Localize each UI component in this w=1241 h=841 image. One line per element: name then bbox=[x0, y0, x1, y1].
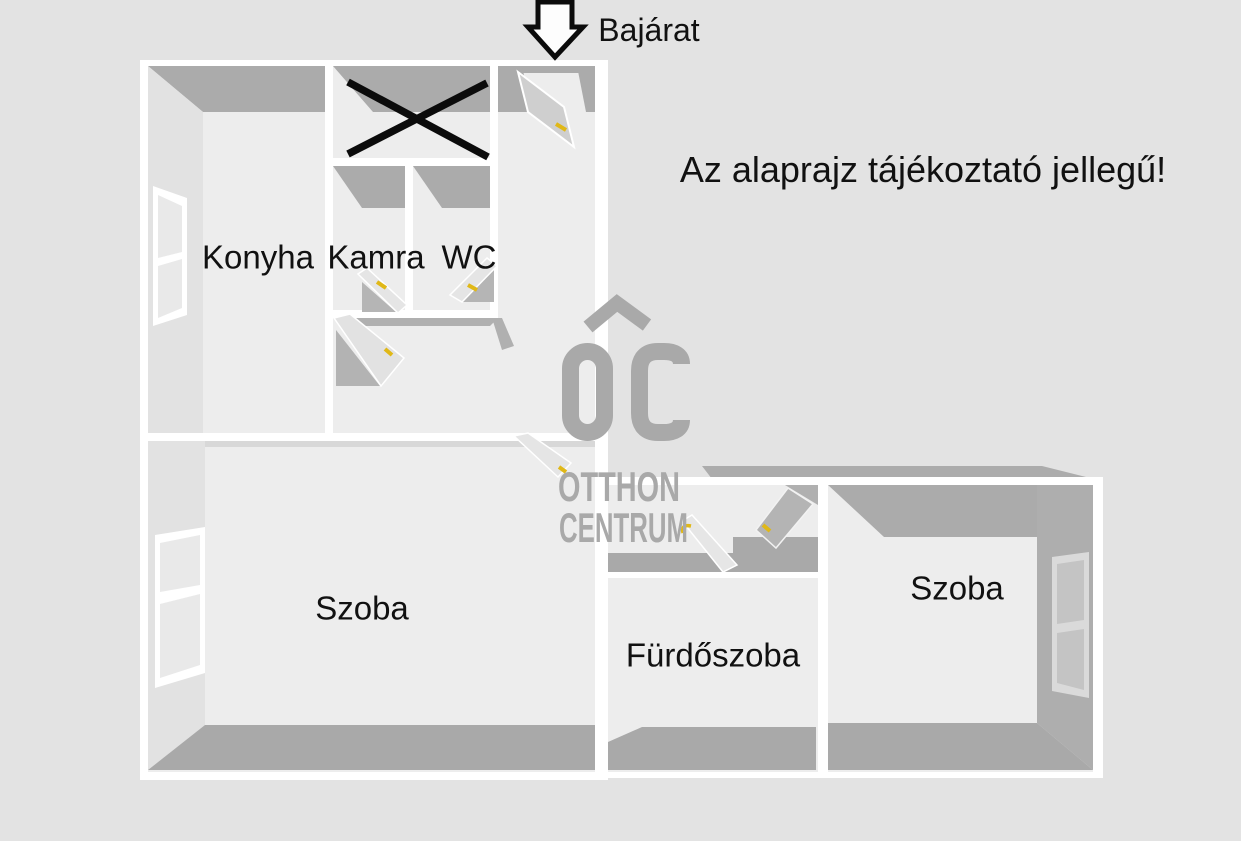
floorplan-canvas: OTTHON CENTRUM Bajárat Az alaprajz tájék… bbox=[0, 0, 1241, 841]
window-pane bbox=[160, 594, 200, 678]
floor-plan-svg: OTTHON CENTRUM bbox=[0, 0, 1241, 841]
window-pane bbox=[158, 259, 182, 318]
room-label-szoba-right: Szoba bbox=[910, 572, 1004, 605]
disclaimer-text: Az alaprajz tájékoztató jellegű! bbox=[680, 152, 1166, 188]
corridor-north-wall-shadow bbox=[344, 318, 498, 326]
window-pane bbox=[158, 195, 182, 258]
szoba-left-window bbox=[155, 527, 205, 688]
room-label-kamra: Kamra bbox=[327, 241, 424, 274]
window-pane bbox=[160, 535, 200, 592]
window-pane bbox=[1057, 560, 1084, 624]
watermark-line1: OTTHON bbox=[558, 463, 680, 510]
entrance-label: Bajárat bbox=[598, 14, 699, 46]
room-label-wc: WC bbox=[442, 241, 497, 274]
room-label-furdoszoba: Fürdőszoba bbox=[626, 639, 800, 672]
room-label-konyha: Konyha bbox=[202, 241, 314, 274]
room-label-szoba-left: Szoba bbox=[315, 592, 409, 625]
furdoszoba-south-shadow bbox=[608, 727, 816, 770]
szoba-left-south-shadow bbox=[148, 725, 595, 770]
window-pane bbox=[1057, 629, 1084, 690]
szoba-right-window bbox=[1052, 552, 1089, 698]
konyha-window bbox=[153, 186, 187, 326]
watermark-line2: CENTRUM bbox=[559, 504, 688, 551]
